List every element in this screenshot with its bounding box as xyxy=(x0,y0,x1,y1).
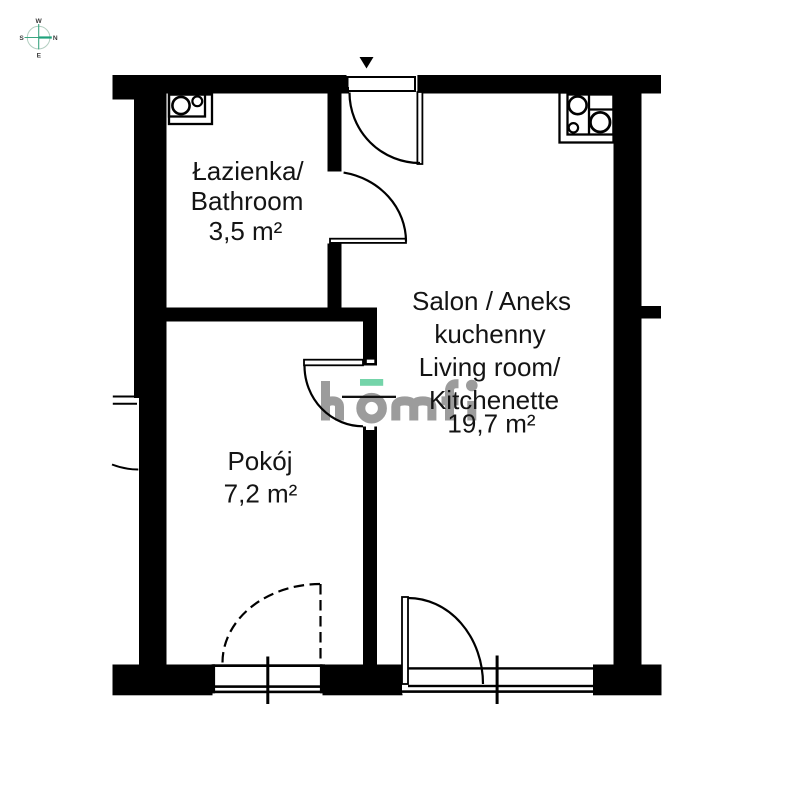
svg-text:N: N xyxy=(53,35,58,42)
svg-text:S: S xyxy=(19,35,24,42)
svg-text:Pokój: Pokój xyxy=(227,446,292,476)
svg-text:Living room/: Living room/ xyxy=(419,352,561,382)
svg-text:E: E xyxy=(37,52,42,59)
svg-text:kuchenny: kuchenny xyxy=(434,319,545,349)
svg-text:3,5 m²: 3,5 m² xyxy=(209,216,283,246)
svg-text:Salon / Aneks: Salon / Aneks xyxy=(412,286,571,316)
svg-text:W: W xyxy=(35,18,42,25)
svg-text:Łazienka/: Łazienka/ xyxy=(192,156,304,186)
svg-text:19,7 m²: 19,7 m² xyxy=(447,409,535,439)
svg-text:Bathroom: Bathroom xyxy=(191,186,304,216)
svg-text:7,2 m²: 7,2 m² xyxy=(224,479,298,509)
